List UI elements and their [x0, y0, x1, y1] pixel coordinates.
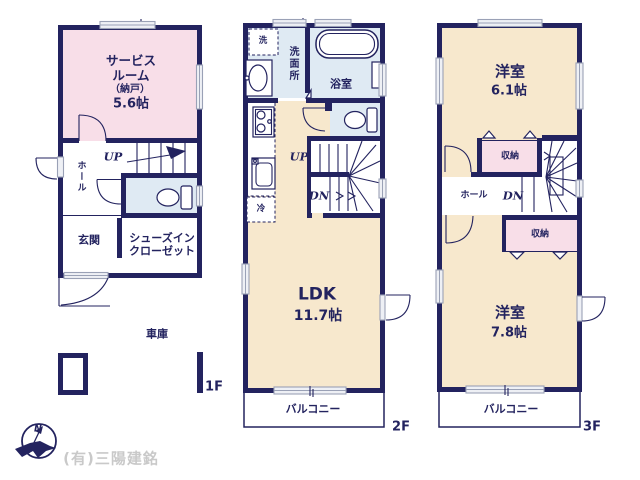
floor-label-1f: 1F — [205, 381, 223, 394]
ldk-size-label: 11.7帖 — [294, 309, 343, 323]
ldk-label: LDK — [298, 287, 336, 304]
balcony-label-2f: バルコニー — [286, 404, 341, 415]
bathroom-label: 浴室 — [330, 79, 352, 90]
washbasin-icon — [245, 60, 272, 96]
hall-label-1f: ホール — [76, 161, 85, 194]
hall-label-3f: ホール — [460, 192, 487, 201]
bedroom1-size-label: 6.1帖 — [491, 85, 527, 98]
kitchen-sink-icon — [252, 158, 275, 189]
service-room-label-line1: サービス — [106, 55, 156, 68]
closet1-label: 収納 — [501, 153, 519, 162]
shoe-closet-label-line2: クローゼット — [129, 246, 195, 257]
bedroom2-label: 洋室 — [495, 306, 525, 321]
service-room-label-line2: ルーム — [112, 70, 149, 83]
entrance-label: 玄関 — [78, 235, 100, 246]
garage-pillar — [58, 352, 203, 395]
dn-label-3f: DN — [503, 190, 523, 202]
dn-label-2f: DN — [309, 190, 329, 202]
shoe-closet-label-line1: シューズイン — [129, 233, 194, 244]
company-watermark: (有)三陽建銘 — [63, 452, 159, 467]
service-room-size: 5.6帖 — [113, 98, 149, 111]
floor-2f — [242, 18, 410, 427]
fridge-label: 冷 — [257, 205, 266, 214]
bedroom2-size-label: 7.8帖 — [491, 327, 527, 340]
bedroom1-label: 洋室 — [495, 65, 525, 80]
garage-label: 車庫 — [146, 329, 168, 340]
washer-label: 洗 — [259, 37, 268, 46]
floor-label-3f: 3F — [583, 421, 601, 434]
up-label-2f: UP — [290, 151, 309, 163]
service-room-label-line3: （納戸） — [110, 85, 150, 95]
balcony-label-3f: バルコニー — [484, 404, 539, 415]
floor-3f — [436, 20, 605, 428]
floorplan-page: サービス ルーム （納戸） 5.6帖 UP ホール 玄関 シューズイン クローゼ… — [0, 0, 640, 480]
stove-icon — [253, 107, 274, 137]
washroom-label: 洗面所 — [287, 46, 297, 82]
closet2-label: 収納 — [531, 231, 549, 240]
floor-label-2f: 2F — [392, 421, 410, 434]
compass-north-label: N — [34, 424, 42, 434]
up-label-1f: UP — [104, 151, 123, 163]
